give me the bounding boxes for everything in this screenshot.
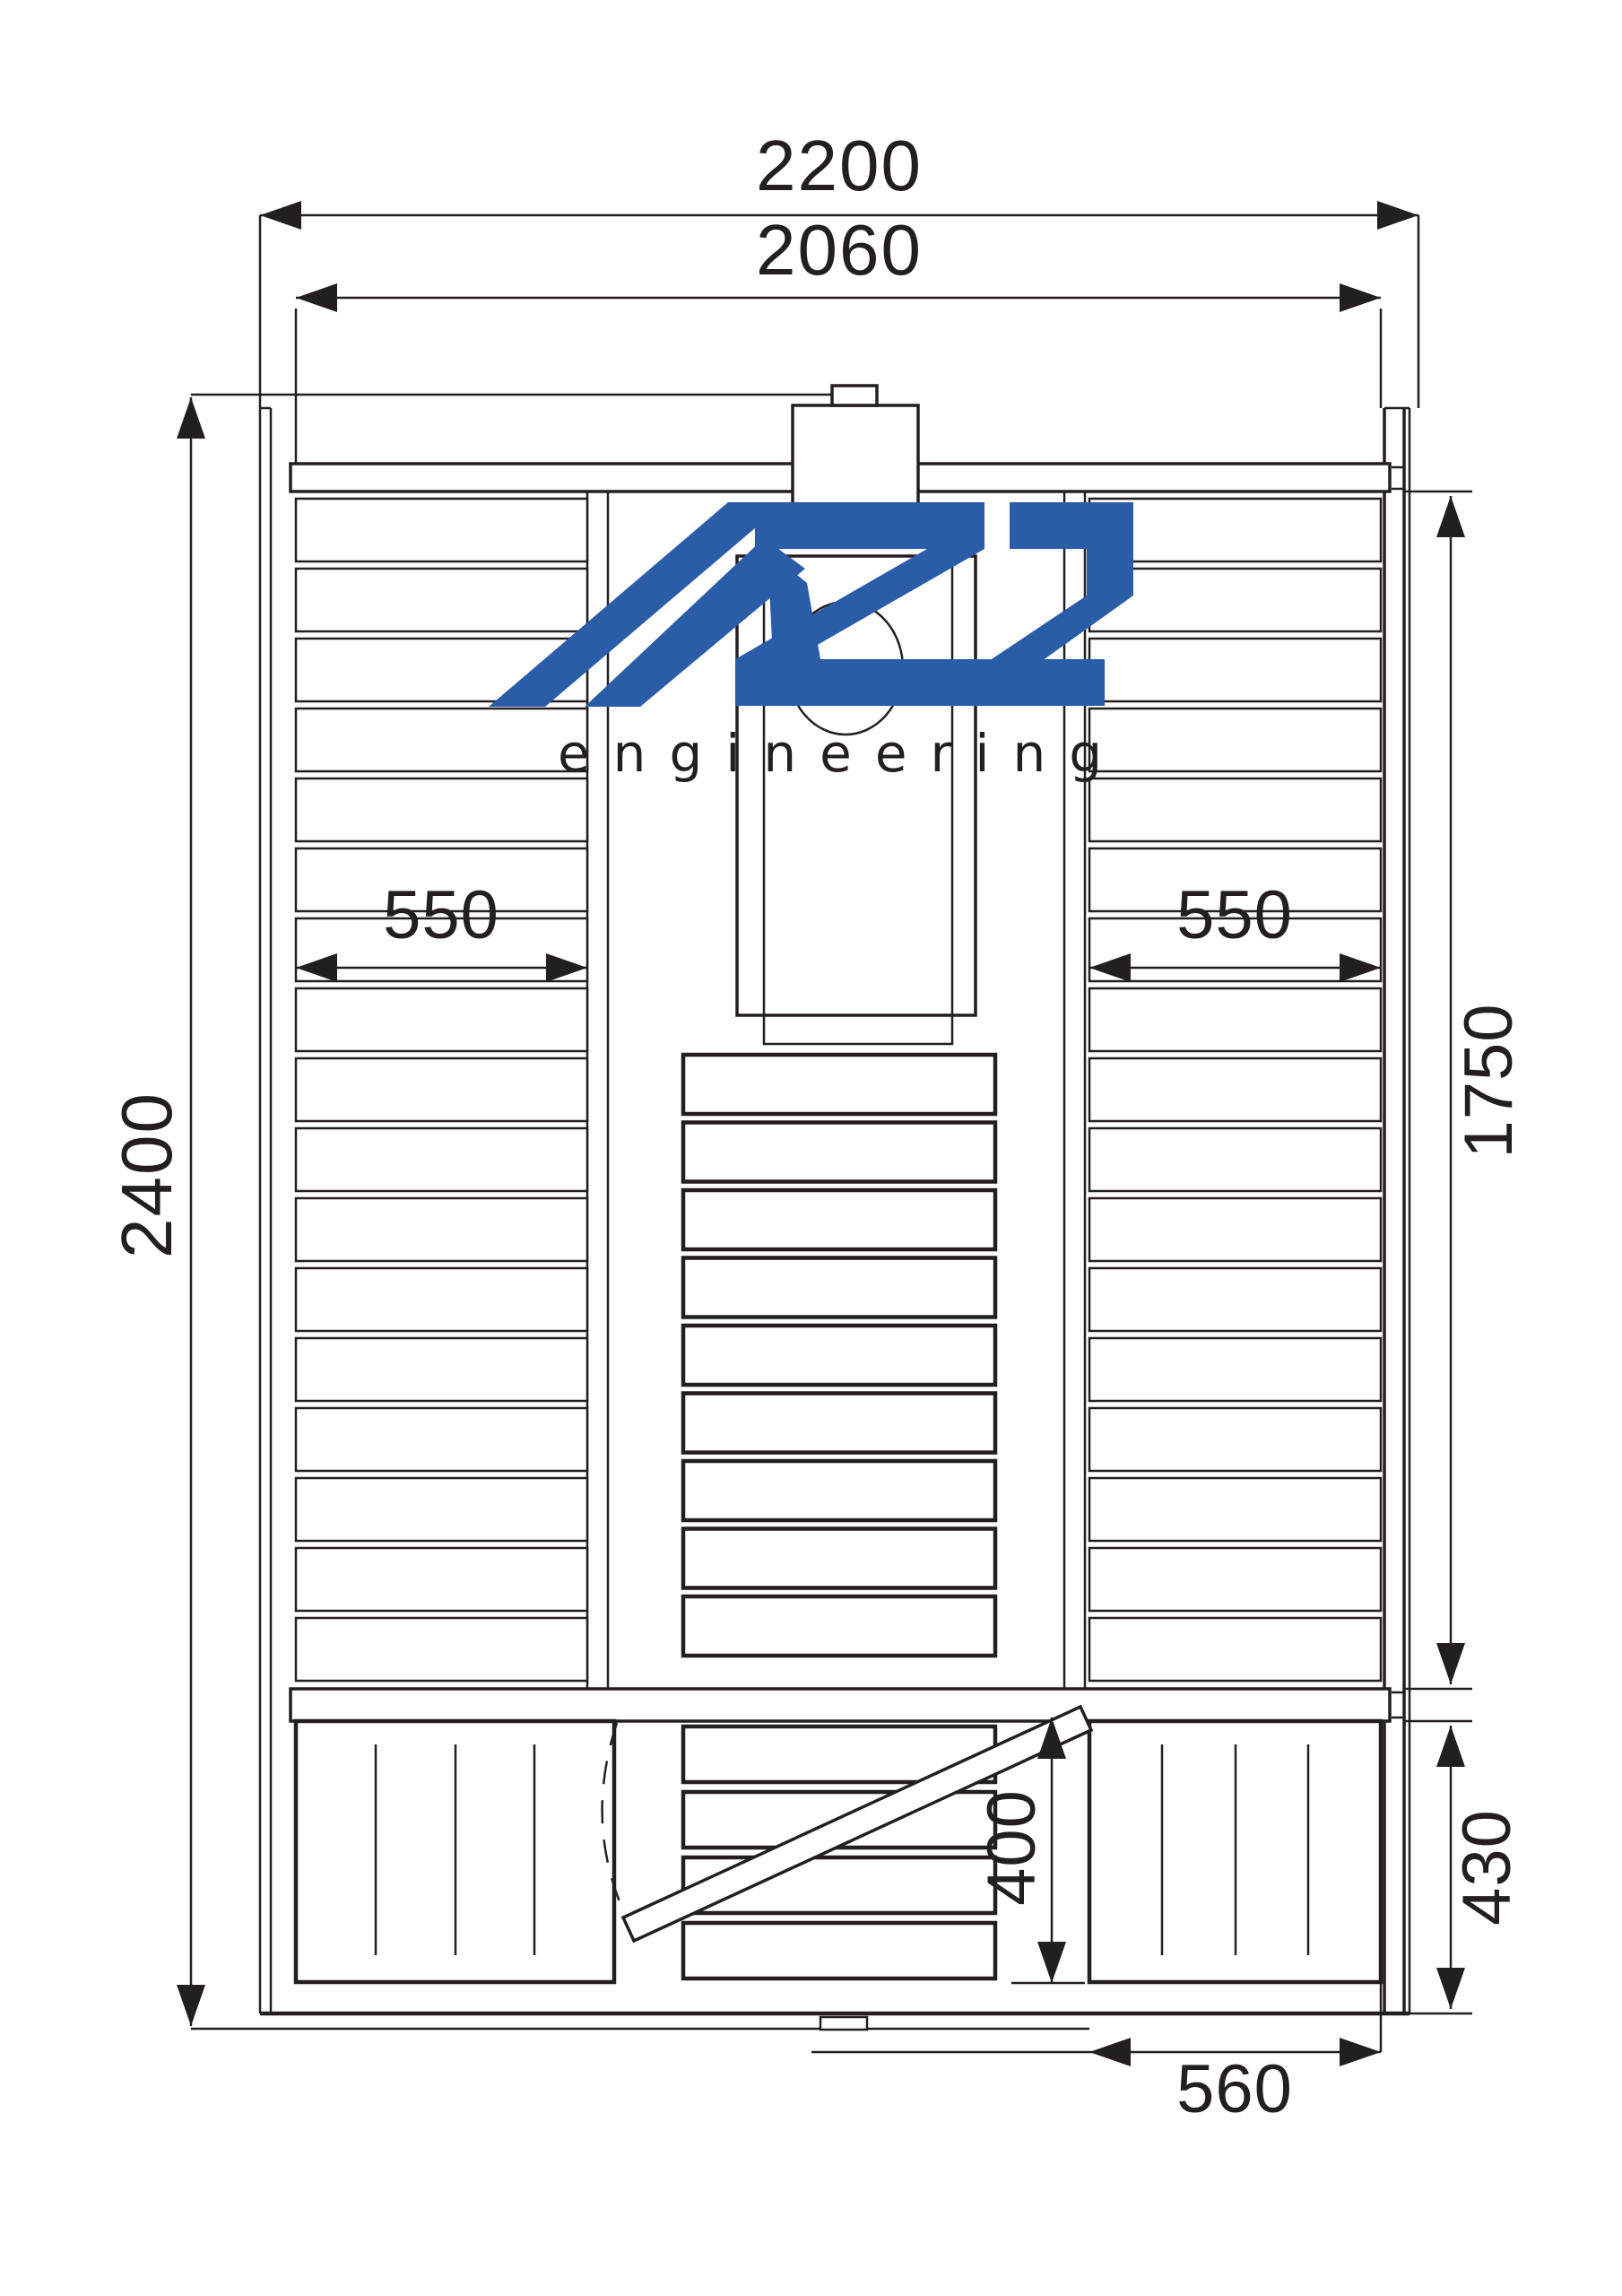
slat <box>296 709 587 771</box>
slat <box>1089 1198 1381 1261</box>
slat <box>296 499 587 561</box>
slat <box>683 1394 995 1453</box>
dim-lower-middle-bench-depth: 400 <box>974 1789 1050 1906</box>
bottom-beam <box>291 1689 1390 1721</box>
slat <box>296 1128 587 1191</box>
slat <box>1089 1618 1381 1681</box>
slat <box>1089 639 1381 701</box>
slat <box>296 1198 587 1261</box>
dim-inner-width: 2060 <box>756 210 923 290</box>
dim-outer-width: 2200 <box>756 126 923 205</box>
floor-plan-drawing: engineering 2200 2060 2400 550 550 1750 <box>0 0 1622 2296</box>
slat <box>683 1190 995 1249</box>
slat <box>296 1268 587 1331</box>
dim-left-bench-width: 550 <box>383 877 499 953</box>
dim-entry-bench-width: 560 <box>1176 2051 1293 2127</box>
slat <box>1089 778 1381 841</box>
central-floor-slats <box>683 1055 995 1656</box>
slat <box>296 778 587 841</box>
slat <box>296 1478 587 1541</box>
logo-letter-s-top <box>1010 502 1133 549</box>
lower-middle-bench-slats <box>683 1726 995 1979</box>
slat <box>296 1408 587 1471</box>
slat <box>296 569 587 631</box>
slat <box>683 1326 995 1385</box>
slat <box>1089 1058 1381 1121</box>
slat <box>683 1529 995 1588</box>
slat <box>296 1618 587 1681</box>
slat <box>683 1123 995 1182</box>
dim-right-bench-width: 550 <box>1176 877 1293 953</box>
slat <box>683 1923 995 1979</box>
slat <box>1089 1268 1381 1331</box>
chimney-vent <box>832 386 877 405</box>
slat <box>683 1461 995 1520</box>
slat <box>1089 1128 1381 1191</box>
slat <box>683 1596 995 1656</box>
slat <box>296 1548 587 1611</box>
logo-base-bar <box>735 659 1105 706</box>
dim-entry-zone-depth: 430 <box>1449 1809 1525 1926</box>
slat <box>1089 988 1381 1051</box>
slat <box>683 1055 995 1114</box>
dim-outer-depth: 2400 <box>107 1091 186 1258</box>
slat <box>683 1258 995 1318</box>
slat <box>1089 709 1381 771</box>
slat <box>296 1058 587 1121</box>
slat <box>296 1338 587 1401</box>
door-threshold <box>820 2017 867 2030</box>
slat <box>1089 1478 1381 1541</box>
drawing-page: engineering 2200 2060 2400 550 550 1750 <box>0 0 1622 2296</box>
slat <box>1089 1548 1381 1611</box>
right-bench-slats <box>1089 499 1381 1681</box>
dim-main-room-depth: 1750 <box>1451 1003 1527 1158</box>
logo-letter-s-right <box>1087 549 1133 596</box>
logo-subtitle: engineering <box>558 723 1125 784</box>
logo-letter-z-top <box>755 502 984 549</box>
slat <box>296 988 587 1051</box>
entry-zone <box>296 1707 1381 2030</box>
slat <box>1089 1338 1381 1401</box>
stove-chimney <box>793 405 918 508</box>
slat <box>1089 1408 1381 1471</box>
